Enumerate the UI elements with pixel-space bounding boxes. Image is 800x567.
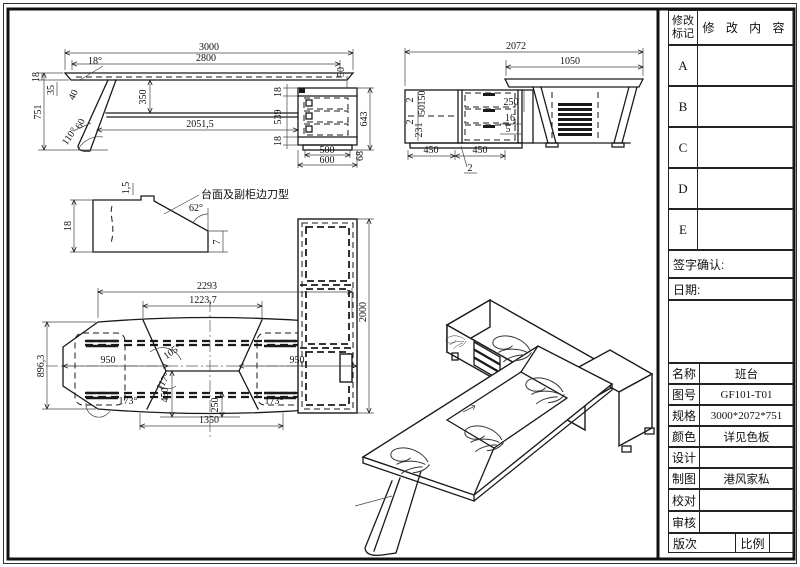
dim-label: 896,3 (36, 355, 47, 378)
version-label: 版次 (669, 534, 735, 552)
dim-label: 250 (210, 398, 221, 413)
info-row-drawing-no: 图号 GF101-T01 (668, 384, 794, 405)
dim-label: 1223,7 (189, 295, 217, 306)
dim-label: 173° (265, 396, 284, 407)
revision-mark: D (669, 169, 698, 208)
edge-profile-detail: 台面及副柜边刀型 18 1,5 62° 7 (63, 182, 289, 252)
info-label: 名称 (669, 364, 700, 383)
drawing-sheet: 3000 2800 18 18° 35 40 751 350 60 110° 2… (0, 0, 800, 567)
info-label: 校对 (669, 490, 700, 510)
revision-row-b: B (668, 86, 794, 127)
dim-label: 40 (67, 88, 81, 102)
revision-header-row: 修改标记 修 改 内 容 (668, 10, 794, 45)
info-row-color: 颜色 详见色板 (668, 426, 794, 447)
info-label: 图号 (669, 385, 700, 404)
dim-label: 18 (273, 136, 284, 146)
dim-label: 2000 (358, 302, 369, 322)
revision-mark-header: 修改标记 (669, 11, 698, 44)
dim-label: 2800 (196, 53, 216, 64)
side-cabinet-plan: 2000 (298, 219, 374, 413)
signature-label: 签字确认: (669, 251, 724, 277)
isometric-view (355, 300, 654, 555)
revision-content-cell (698, 46, 793, 85)
dim-label: 1,5 (121, 182, 132, 195)
dim-label: 600 (320, 155, 335, 166)
info-value: 班台 (700, 364, 793, 383)
revision-row-e: E (668, 209, 794, 250)
dim-label: 18 (31, 72, 42, 82)
info-value: 详见色板 (700, 427, 793, 446)
info-label: 颜色 (669, 427, 700, 446)
date-label: 日期: (669, 279, 700, 299)
dim-label: 2051,5 (186, 119, 214, 130)
revision-content-cell (698, 87, 793, 126)
front-elevation-view: 3000 2800 18 18° 35 40 751 350 60 110° 2… (31, 42, 374, 168)
footer-row: 版次 比例 (668, 533, 794, 553)
revision-row-d: D (668, 168, 794, 209)
dim-label: 18 (63, 221, 74, 231)
dim-label: 50 (336, 67, 347, 77)
dim-label: 7 (212, 240, 223, 245)
dim-label: 2 (468, 163, 473, 174)
dim-label: 231 (414, 123, 425, 138)
revision-mark: B (669, 87, 698, 126)
dim-label: 2293 (197, 281, 217, 292)
side-elevation-view: 2072 1050 2 150 50 2 231 250 16 5 450 45… (405, 41, 643, 174)
dim-label: 68 (355, 151, 366, 161)
dim-label: 950 (290, 355, 305, 366)
revision-content-cell (698, 169, 793, 208)
info-row-name: 名称 班台 (668, 363, 794, 384)
dim-label: 450 (473, 145, 488, 156)
revision-mark: A (669, 46, 698, 85)
revision-row-a: A (668, 45, 794, 86)
notes-empty-box (668, 300, 794, 363)
revision-mark: C (669, 128, 698, 167)
dim-label: 450 (160, 388, 171, 403)
info-row-review: 审核 (668, 511, 794, 533)
dim-label: 1050 (560, 56, 580, 67)
dim-label: 751 (33, 105, 44, 120)
dim-label: 173° (119, 396, 138, 407)
info-row-draftsman: 制图 港风家私 (668, 468, 794, 489)
info-value: 3000*2072*751 (700, 406, 793, 425)
info-value (700, 448, 793, 467)
info-label: 审核 (669, 512, 700, 532)
signature-row: 签字确认: (668, 250, 794, 278)
revision-row-c: C (668, 127, 794, 168)
date-row: 日期: (668, 278, 794, 300)
dim-label: 62° (189, 203, 203, 214)
info-value: 港风家私 (700, 469, 793, 488)
info-row-spec: 规格 3000*2072*751 (668, 405, 794, 426)
dim-label: 643 (359, 112, 370, 127)
info-value: GF101-T01 (700, 385, 793, 404)
dim-label: 350 (138, 90, 149, 105)
dim-label: 18 (273, 87, 284, 97)
dim-label: 3000 (199, 42, 219, 53)
dim-label: 250 (504, 97, 519, 108)
dim-label: 16 (505, 113, 515, 124)
info-label: 规格 (669, 406, 700, 425)
dim-label: 35 (46, 85, 57, 95)
dim-label: 150 (417, 91, 428, 106)
dim-label: 539 (273, 110, 284, 125)
info-label: 设计 (669, 448, 700, 467)
dim-label: 50 (417, 105, 428, 115)
title-block: 修改标记 修 改 内 容 A B C D E 签字确认: 日期: 名称 班台 图… (668, 10, 794, 553)
dim-label: 2072 (506, 41, 526, 52)
dim-label: 2 (405, 98, 416, 103)
info-row-design: 设计 (668, 447, 794, 468)
dim-label: 18° (88, 56, 102, 67)
info-row-proofread: 校对 (668, 489, 794, 511)
info-value (700, 490, 793, 510)
edge-detail-callout: 台面及副柜边刀型 (201, 187, 289, 201)
revision-content-cell (698, 128, 793, 167)
dim-label: 450 (424, 145, 439, 156)
scale-value-cell (769, 534, 793, 552)
dim-label: 950 (101, 355, 116, 366)
dim-label: 1350 (199, 415, 219, 426)
dim-label: 5 (506, 124, 511, 135)
revision-mark: E (669, 210, 698, 249)
scale-label: 比例 (735, 534, 769, 552)
info-label: 制图 (669, 469, 700, 488)
info-value (700, 512, 793, 532)
revision-content-header: 修 改 内 容 (698, 11, 793, 44)
revision-content-cell (698, 210, 793, 249)
